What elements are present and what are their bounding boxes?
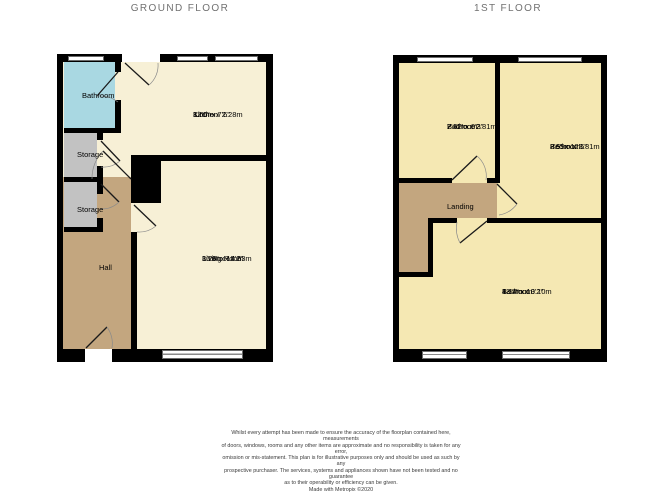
landing-bedroom-wall-left [433, 218, 457, 223]
living-room-window [162, 350, 243, 359]
kitchen-living-wall [161, 155, 266, 161]
storage-2-bottom-wall [64, 227, 103, 232]
bedroom-3-window-2 [502, 351, 570, 359]
floorplan-page: GROUND FLOOR 1ST FLOOR [0, 0, 668, 492]
disclaimer: Whilst every attempt has been made to en… [221, 430, 461, 492]
landing-arm-bottom-wall [399, 272, 433, 277]
landing-name: Landing [447, 203, 474, 210]
bathroom-right-wall-upper [115, 62, 121, 72]
bathroom-window [68, 56, 104, 61]
storage-2-name: Storage [77, 206, 103, 213]
bathroom-right-wall-lower [115, 100, 121, 128]
disclaimer-line: of doors, windows, rooms and any other i… [221, 443, 461, 456]
storage-1-right-wall-lower [97, 166, 103, 177]
bedroom-3-size-imperial: 13'7" x 10'2" [502, 288, 543, 295]
bedroom-3-window-1 [422, 351, 467, 359]
landing-bedroom-wall-right [487, 218, 601, 223]
bedroom-1-bottom-wall-left [399, 178, 452, 183]
bedroom-1-bottom-wall-right [487, 178, 495, 183]
first-floor-plan: Bedroom 2.42m x 2.81m 7'11" x 9'3" Bedro… [393, 55, 607, 362]
hall-name: Hall [99, 264, 112, 271]
landing-area [399, 183, 497, 218]
kitchen-window-1 [177, 56, 208, 61]
bathroom-bottom-wall [64, 128, 121, 133]
living-room-size-imperial: 10'8" x 15'2" [202, 255, 243, 262]
storage-1-name: Storage [77, 151, 103, 158]
hall-living-wall [131, 232, 137, 349]
ff-wall-right [601, 55, 607, 362]
kitchen-size-imperial: 12'0" x 7'6" [193, 111, 230, 118]
storage-1-right-wall-upper [97, 133, 103, 140]
disclaimer-line: omission or mis-statement. This plan is … [221, 455, 461, 468]
bathroom-name: Bathroom [82, 92, 115, 99]
bedroom-2-window [518, 57, 582, 62]
disclaimer-line: Whilst every attempt has been made to en… [221, 430, 461, 443]
bedroom-2-size-imperial: 8'6" x 12'6" [550, 143, 587, 150]
ground-floor-plan: Bathroom Kitchen 3.66m x 2.28m 12'0" x 7… [57, 54, 273, 362]
storage-2-right-wall-lower [97, 218, 103, 227]
ground-floor-title: GROUND FLOOR [131, 3, 229, 14]
front-door-opening [85, 349, 112, 362]
first-floor-title: 1ST FLOOR [474, 3, 542, 14]
bedroom-1-size-imperial: 7'11" x 9'3" [447, 123, 483, 130]
gf-wall-right [266, 54, 273, 362]
disclaimer-line: prospective purchaser. The services, sys… [221, 468, 461, 481]
bedroom-1-window [417, 57, 473, 62]
back-door-opening [122, 54, 160, 62]
landing-arm-right-wall [428, 218, 433, 277]
storage-2-right-wall-upper [97, 182, 103, 194]
kitchen-window-2 [215, 56, 258, 61]
disclaimer-credit: Made with Metropix ©2020 [221, 487, 461, 492]
landing-arm-area [399, 218, 428, 272]
chimney-block [131, 155, 161, 203]
